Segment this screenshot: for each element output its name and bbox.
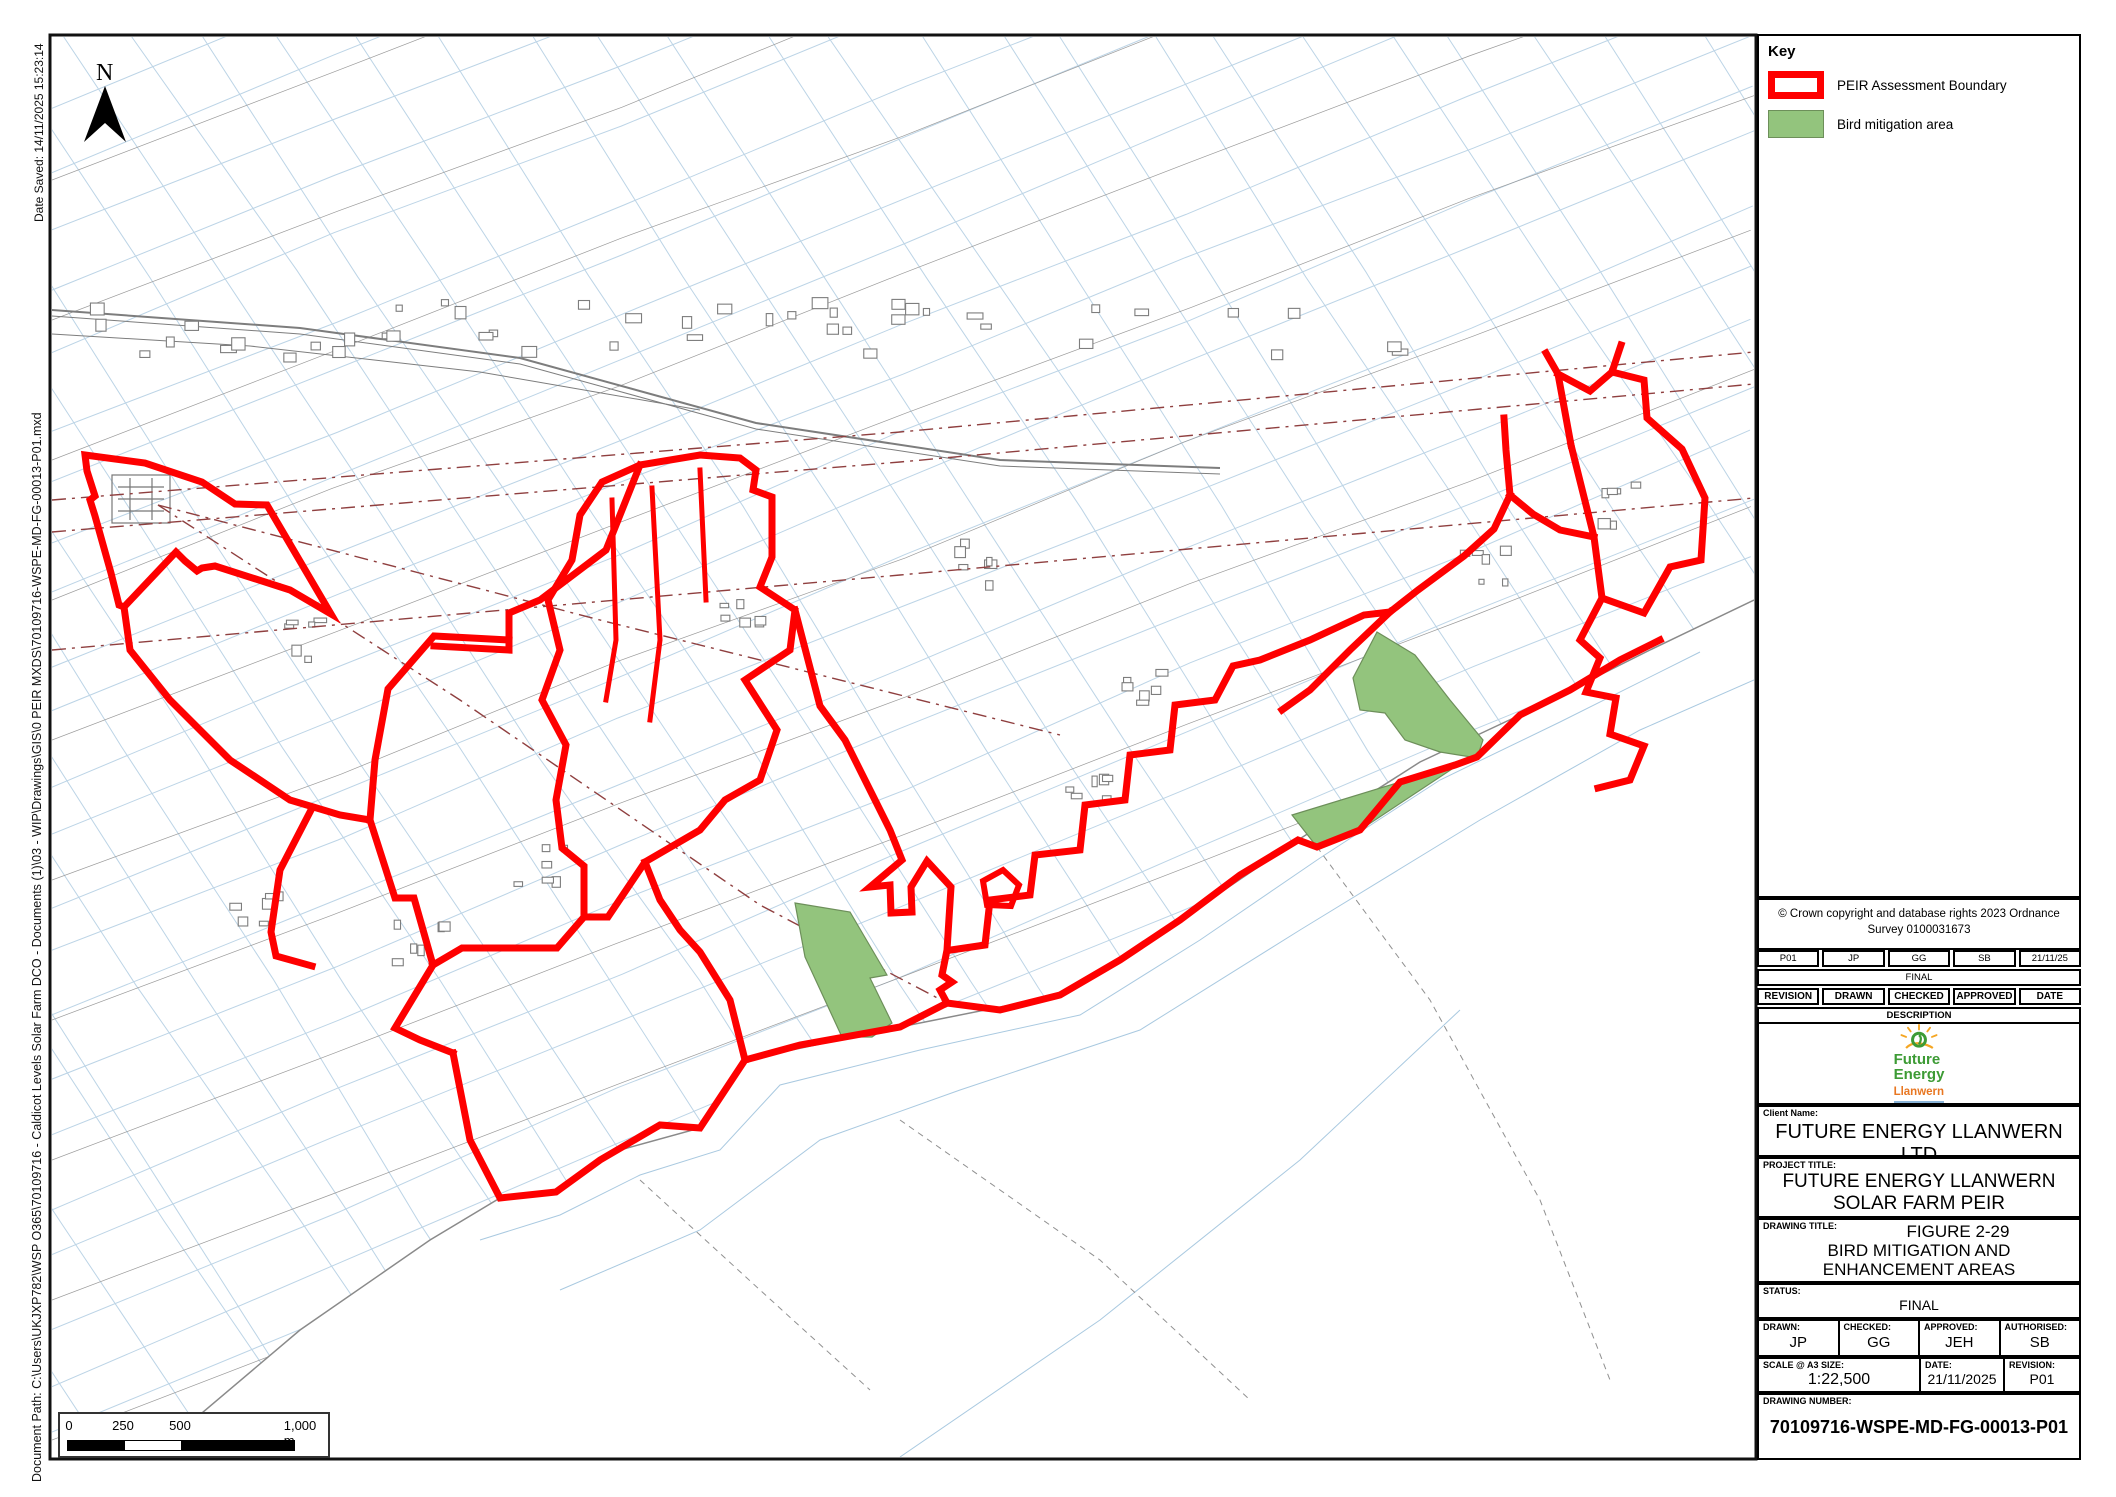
scale-segment — [68, 1441, 125, 1450]
project-title-line: SOLAR FARM PEIR — [1759, 1193, 2079, 1215]
scale-bar-label: 0 — [65, 1418, 72, 1433]
meta-cell-date: DATE: 21/11/2025 — [1919, 1359, 2003, 1391]
signoff-value: JEH — [1920, 1333, 1999, 1355]
meta-label: REVISION: — [2005, 1359, 2079, 1371]
project-title-line: FUTURE ENERGY LLANWERN — [1759, 1171, 2079, 1193]
revision-cell: 21/11/25 — [2019, 950, 2081, 967]
drawing-sheet: N Date Saved: 14/11/2025 15:23:14 Docume… — [0, 0, 2116, 1497]
bird-mitigation-swatch-icon — [1768, 110, 1824, 138]
peir-boundary-swatch-icon — [1768, 71, 1824, 99]
drawing-number-value: 70109716-WSPE-MD-FG-00013-P01 — [1759, 1417, 2079, 1438]
client-box: Client Name: FUTURE ENERGY LLANWERN LTD — [1757, 1105, 2081, 1157]
meta-label: SCALE @ A3 SIZE: — [1759, 1359, 1919, 1371]
meta-cell-revision: REVISION: P01 — [2003, 1359, 2079, 1391]
revision-cell: P01 — [1757, 950, 1819, 967]
revision-header-cell: CHECKED — [1888, 988, 1950, 1005]
revision-header-cell: DATE — [2019, 988, 2081, 1005]
signoff-label: AUTHORISED: — [2001, 1321, 2080, 1333]
signoff-cell-drawn: DRAWN: JP — [1759, 1321, 1838, 1355]
drawing-number-label: DRAWING NUMBER: — [1759, 1395, 2079, 1407]
meta-value: 1:22,500 — [1759, 1371, 1919, 1392]
signoff-value: SB — [2001, 1333, 2080, 1355]
revision-cell: JP — [1822, 950, 1884, 967]
revision-header-cell: DRAWN — [1822, 988, 1884, 1005]
sea-area — [150, 600, 1754, 1457]
revision-header-cell: APPROVED — [1953, 988, 2015, 1005]
status-label: STATUS: — [1759, 1285, 2079, 1297]
drawing-title-box: DRAWING TITLE: FIGURE 2-29 BIRD MITIGATI… — [1757, 1218, 2081, 1283]
key-panel: Key PEIR Assessment Boundary Bird mitiga… — [1757, 34, 2081, 898]
meta-value: P01 — [2005, 1371, 2079, 1391]
logo-word: Future — [1894, 1052, 1945, 1068]
revision-header-row: REVISION DRAWN CHECKED APPROVED DATE — [1757, 988, 2081, 1005]
signoff-label: CHECKED: — [1840, 1321, 1919, 1333]
project-title-box: PROJECT TITLE: FUTURE ENERGY LLANWERN SO… — [1757, 1157, 2081, 1218]
signoff-value: GG — [1840, 1333, 1919, 1355]
drawing-title-line: ENHANCEMENT AREAS — [1759, 1260, 2079, 1279]
date-saved-note: Date Saved: 14/11/2025 15:23:14 — [32, 43, 46, 222]
drawing-number-box: DRAWING NUMBER: 70109716-WSPE-MD-FG-0001… — [1757, 1393, 2081, 1460]
status-box: STATUS: FINAL — [1757, 1283, 2081, 1319]
copyright-line: Survey 0100031673 — [1759, 923, 2079, 939]
signoff-label: APPROVED: — [1920, 1321, 1999, 1333]
key-item-bird-mitigation: Bird mitigation area — [1768, 110, 2079, 138]
logo-word: Llanwern — [1894, 1086, 1944, 1103]
scale-bar-segments — [67, 1440, 295, 1451]
signoff-cell-authorised: AUTHORISED: SB — [1999, 1321, 2080, 1355]
key-item-label: Bird mitigation area — [1837, 117, 1953, 132]
signoff-value: JP — [1759, 1333, 1838, 1355]
meta-label: DATE: — [1921, 1359, 2003, 1371]
meta-row: SCALE @ A3 SIZE: 1:22,500 DATE: 21/11/20… — [1757, 1357, 2081, 1393]
key-title: Key — [1759, 36, 2079, 60]
signoff-cell-checked: CHECKED: GG — [1838, 1321, 1919, 1355]
status-value: FINAL — [1759, 1297, 2079, 1313]
meta-value: 21/11/2025 — [1921, 1371, 2003, 1391]
revision-values-row: P01 JP GG SB 21/11/25 — [1757, 950, 2081, 967]
project-title-label: PROJECT TITLE: — [1759, 1159, 2079, 1171]
key-item-peir-boundary: PEIR Assessment Boundary — [1768, 71, 2079, 99]
signoff-cell-approved: APPROVED: JEH — [1918, 1321, 1999, 1355]
scale-bar: 0 250 500 1,000 m — [58, 1412, 330, 1458]
drawing-title-line: BIRD MITIGATION AND — [1759, 1241, 2079, 1260]
future-energy-llanwern-logo-icon — [1897, 1024, 1941, 1052]
drawing-title-label: DRAWING TITLE: — [1759, 1220, 1837, 1232]
revision-history-table: P01 JP GG SB 21/11/25 FINAL REVISION DRA… — [1757, 950, 2081, 1026]
signoff-row: DRAWN: JP CHECKED: GG APPROVED: JEH AUTH… — [1757, 1319, 2081, 1357]
scale-segment — [125, 1441, 182, 1450]
north-label: N — [96, 60, 113, 86]
north-arrow-icon — [84, 86, 126, 142]
logo-word: Energy — [1894, 1067, 1945, 1083]
key-item-label: PEIR Assessment Boundary — [1837, 78, 2007, 93]
copyright-line: © Crown copyright and database rights 20… — [1759, 907, 2079, 923]
revision-cell: GG — [1888, 950, 1950, 967]
scale-segment — [181, 1441, 294, 1450]
signoff-label: DRAWN: — [1759, 1321, 1838, 1333]
scale-bar-label: 500 — [169, 1418, 191, 1433]
scale-bar-label: 250 — [112, 1418, 134, 1433]
meta-cell-scale: SCALE @ A3 SIZE: 1:22,500 — [1759, 1359, 1919, 1391]
client-label: Client Name: — [1759, 1107, 2079, 1119]
revision-cell: SB — [1953, 950, 2015, 967]
revision-description-value: FINAL — [1757, 969, 2081, 986]
document-path-note: Document Path: C:\Users\UKJXP782\WSP O36… — [30, 412, 44, 1482]
copyright-box: © Crown copyright and database rights 20… — [1757, 898, 2081, 950]
revision-header-cell: REVISION — [1757, 988, 1819, 1005]
logo-box: Future Energy Llanwern — [1757, 1022, 2081, 1105]
